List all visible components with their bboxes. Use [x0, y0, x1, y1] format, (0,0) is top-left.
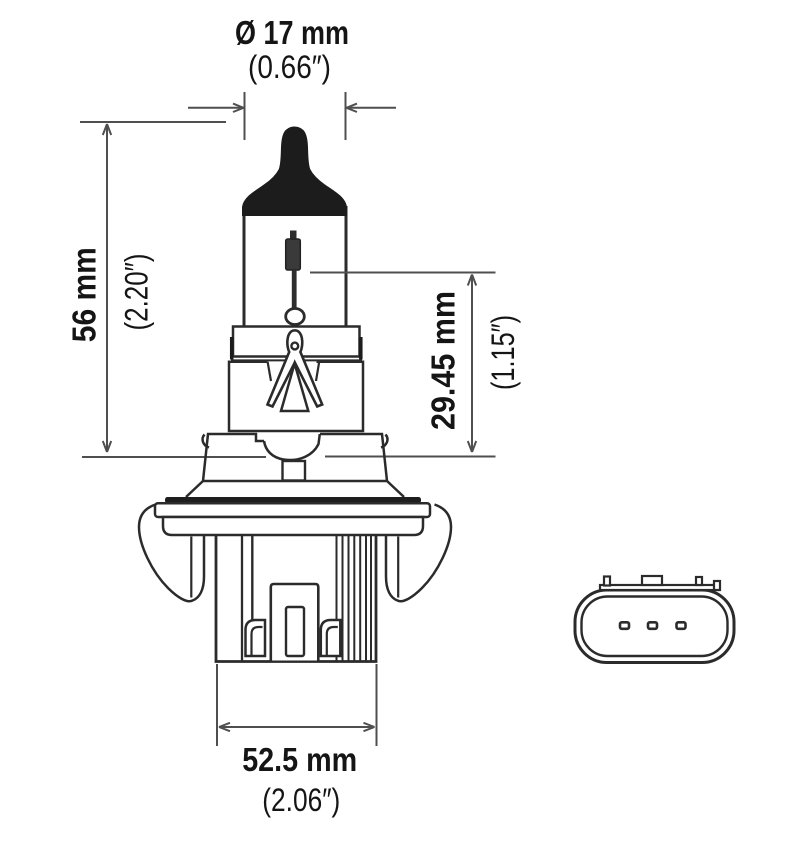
- svg-text:52.5 mm: 52.5 mm: [242, 742, 357, 779]
- svg-text:(1.15″): (1.15″): [485, 315, 521, 390]
- svg-text:(2.20″): (2.20″): [118, 254, 154, 331]
- svg-text:29.45 mm: 29.45 mm: [426, 291, 463, 430]
- svg-text:56 mm: 56 mm: [67, 247, 104, 342]
- svg-text:(0.66″): (0.66″): [248, 49, 331, 85]
- svg-text:(2.06″): (2.06″): [262, 782, 340, 818]
- svg-text:Ø 17 mm: Ø 17 mm: [235, 15, 349, 52]
